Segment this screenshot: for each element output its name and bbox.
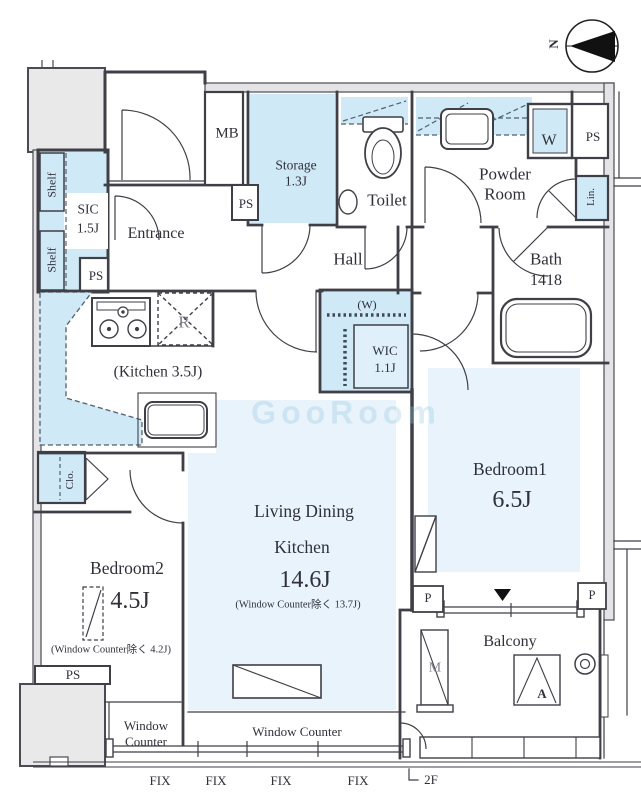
mb-label: MB	[215, 125, 238, 144]
balcony-rail-wall	[420, 737, 600, 758]
shelf-bottom-label: Shelf	[45, 247, 60, 272]
entrance-label: Entrance	[128, 224, 185, 244]
bath-label: Bath	[530, 248, 562, 269]
shelf-top-label: Shelf	[45, 172, 60, 197]
watermark: GooRoom	[251, 395, 441, 432]
bedroom2-dashed-box	[83, 587, 103, 640]
toilet-label: Toilet	[367, 189, 406, 210]
window-counter-small-line2: Counter	[124, 734, 168, 750]
meter-label: M	[429, 659, 441, 677]
pipe-right-label: P	[589, 588, 596, 604]
sic-area: 1.5J	[77, 221, 99, 238]
ps-storage-label: PS	[239, 196, 253, 212]
storage-area: 1.3J	[285, 174, 307, 191]
fix-label-1: FIX	[150, 773, 171, 789]
ldk-label-2: Kitchen	[274, 537, 329, 559]
ps-entrance-label: PS	[89, 268, 103, 284]
stove-icon	[92, 298, 150, 346]
wic-label: WIC	[372, 343, 397, 359]
bedroom1-door	[420, 293, 478, 351]
entry-direction-triangle	[494, 589, 511, 601]
ldk-note: (Window Counter除く 13.7J)	[235, 598, 360, 611]
floorplan-page: N Entrance SIC 1.5J Shelf Shelf PS MB St…	[0, 0, 641, 800]
bedroom2-door	[130, 470, 183, 523]
outer-sill	[33, 762, 641, 767]
powder-door	[425, 167, 481, 223]
fix-label-3: FIX	[271, 773, 292, 789]
storage-door	[262, 225, 310, 273]
vanity-sink-icon	[441, 109, 493, 149]
refrigerator-label: R	[178, 311, 189, 332]
bedroom1-area: 6.5J	[492, 485, 531, 515]
powder-room-label-1: Powder	[479, 163, 531, 184]
structure-block	[20, 684, 105, 766]
hall-label: Hall	[333, 248, 362, 269]
toilet-door	[365, 227, 407, 269]
bedroom2-area: 4.5J	[110, 586, 149, 616]
powder-room-label-2: Room	[484, 183, 526, 204]
floor-label: 2F	[424, 772, 438, 788]
fix-label-2: FIX	[206, 773, 227, 789]
bathtub-icon	[501, 299, 591, 357]
bedroom2-label: Bedroom2	[90, 558, 164, 580]
storage-label: Storage	[275, 158, 316, 175]
bath-size: 1418	[530, 271, 562, 291]
compass-north-label: N	[546, 39, 562, 48]
ldk-label-1: Living Dining	[254, 501, 354, 523]
clo-label: Clo.	[64, 471, 78, 490]
wic-hanger-note: (W)	[357, 298, 376, 313]
window-counter-large: Window Counter	[252, 724, 341, 740]
balcony-label: Balcony	[483, 632, 536, 652]
ps-powder-label: PS	[586, 129, 600, 145]
sic-label: SIC	[77, 202, 98, 219]
window-counter-small: Window Counter	[124, 718, 168, 751]
window-counter-small-line1: Window	[124, 718, 168, 734]
ac-unit-bedroom1	[415, 516, 436, 572]
kitchen-label: (Kitchen 3.5J)	[114, 362, 203, 381]
compass-icon	[566, 20, 618, 72]
balcony-side-window	[601, 655, 608, 717]
balcony-window	[443, 603, 578, 617]
top-wall	[205, 83, 614, 92]
washer-label: W	[541, 131, 556, 151]
fix-label-4: FIX	[348, 773, 369, 789]
bedroom2-note: (Window Counter除く 4.2J)	[51, 643, 171, 656]
bedroom1-label: Bedroom1	[473, 459, 547, 481]
wic-area: 1.1J	[374, 360, 395, 376]
ldk-area: 14.6J	[279, 565, 330, 595]
ac-outdoor-label: A	[537, 686, 546, 702]
linen-label: Lin.	[585, 188, 599, 206]
right-wall	[604, 83, 614, 620]
ldk-door	[256, 291, 317, 352]
corridor-area	[28, 68, 105, 152]
ldk-counter-icon	[233, 665, 321, 698]
kitchen-sink-icon	[138, 393, 216, 447]
pipe-left-label: P	[425, 591, 432, 607]
clo-doors	[86, 458, 108, 500]
ps-bedroom2-label: PS	[66, 667, 80, 683]
entrance-door	[122, 110, 190, 180]
hand-basin-icon	[339, 190, 357, 214]
linen-door	[537, 179, 576, 218]
